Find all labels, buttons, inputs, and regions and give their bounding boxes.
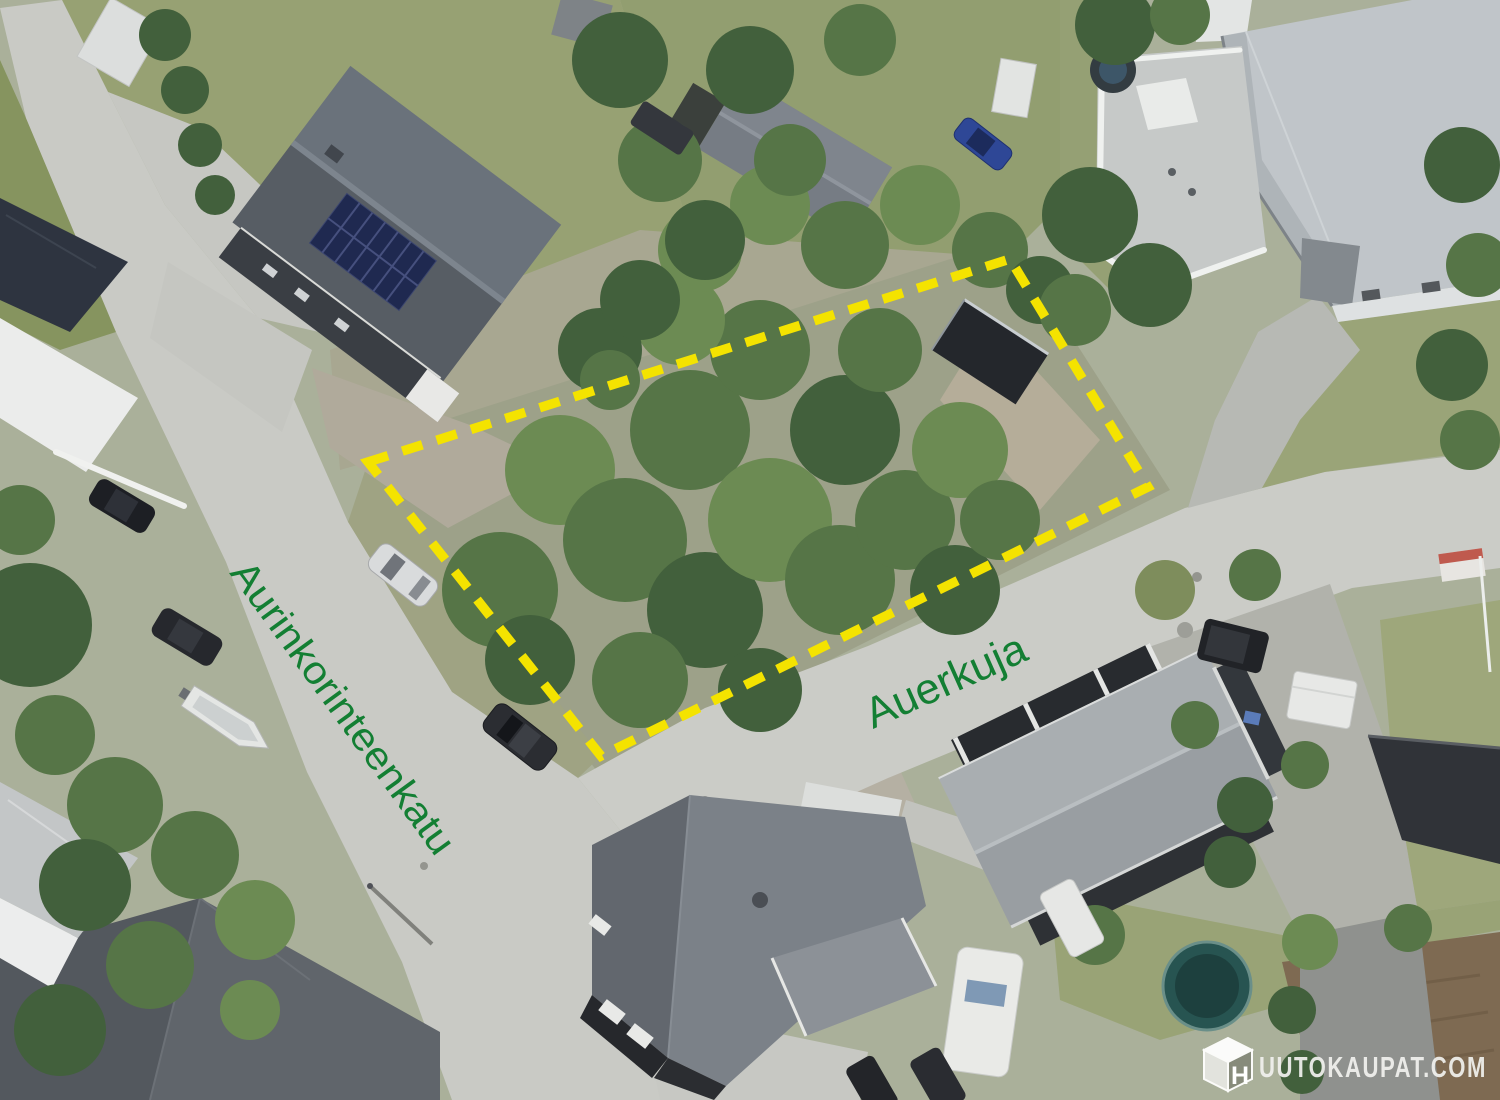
manhole bbox=[1192, 572, 1202, 582]
logo-cube-icon: H bbox=[1204, 1038, 1252, 1091]
chimney bbox=[752, 892, 768, 908]
logo-cube-letter: H bbox=[1231, 1062, 1249, 1090]
utility-pole bbox=[367, 883, 373, 889]
manhole bbox=[420, 862, 428, 870]
entrance-recess bbox=[1300, 238, 1360, 306]
aerial-photo: Aurinkorinteenkatu Auerkuja H UUTOKAUPAT… bbox=[0, 0, 1500, 1100]
logo-text: UUTOKAUPAT.COM bbox=[1259, 1052, 1487, 1084]
white-trailer-right bbox=[1286, 671, 1357, 729]
trampoline bbox=[1163, 942, 1251, 1030]
